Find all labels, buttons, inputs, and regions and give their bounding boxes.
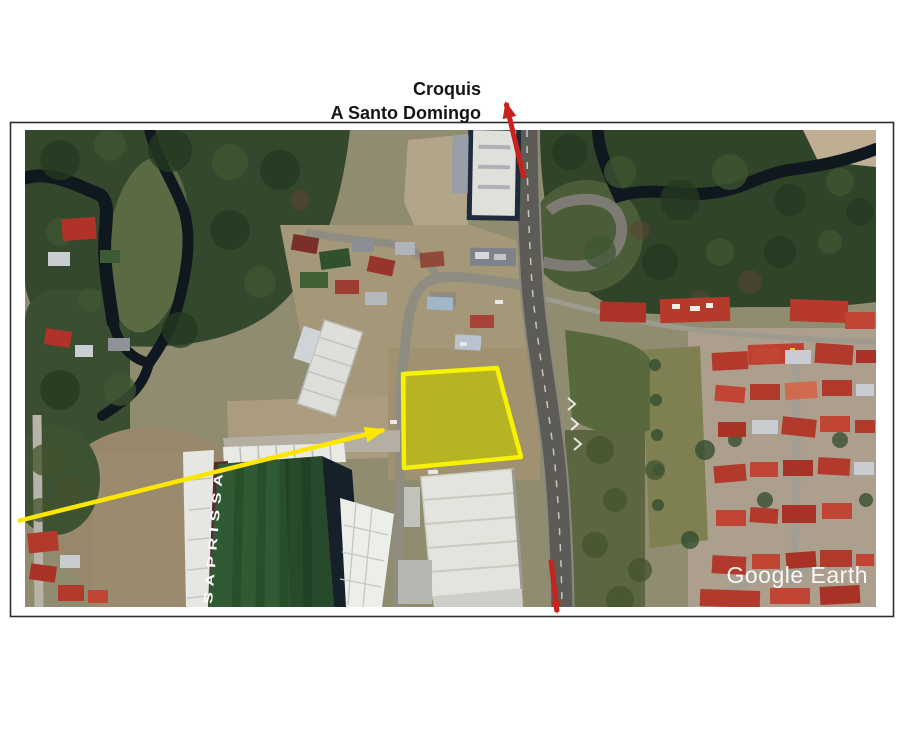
title-block: Croquis A Santo Domingo xyxy=(331,79,481,123)
title-line-1: Croquis xyxy=(413,79,481,99)
croquis-document: SAPRISSA xyxy=(0,0,900,750)
google-earth-watermark: Google Earth xyxy=(726,562,868,588)
title-line-2: A Santo Domingo xyxy=(331,103,481,123)
bus-platform xyxy=(470,248,516,267)
croquis-image: SAPRISSA xyxy=(0,0,900,750)
highlighted-plot-polygon xyxy=(403,368,521,468)
